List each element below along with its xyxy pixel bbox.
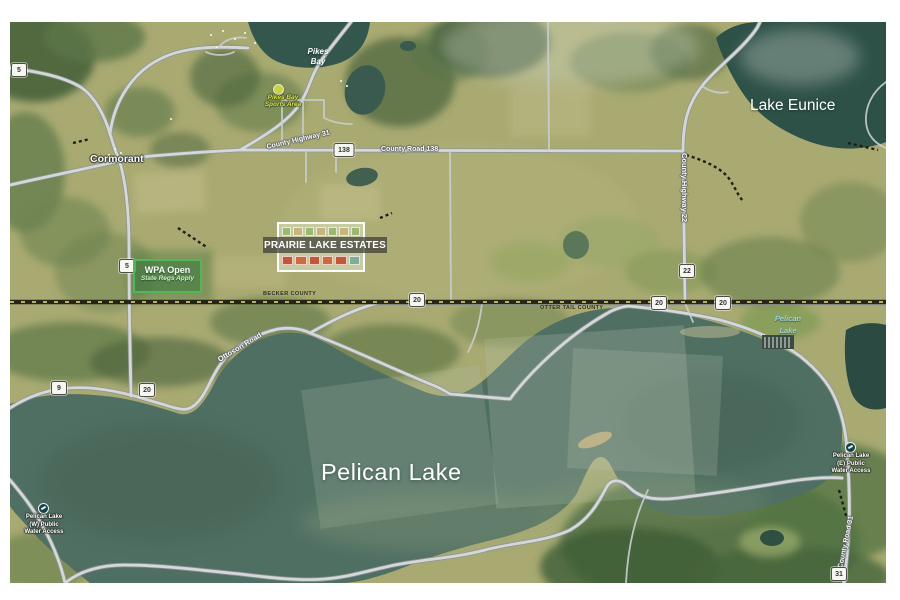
map-canvas[interactable]: Cormorant Pikes Bay Lake Eunice Pelican … [10, 22, 886, 583]
west-access-line1: Pelican Lake [13, 514, 75, 522]
west-access-label: Pelican Lake (W) Public Water Access [13, 514, 75, 537]
sports-area-line2: Sports Area [256, 101, 310, 108]
west-access-line2: (W) Public [13, 522, 75, 530]
estates-label-band: PRAIRIE LAKE ESTATES [263, 237, 387, 253]
sports-area-label: Pikes Bay Sports Area [256, 94, 310, 108]
highway-shield-9: 9 [51, 381, 67, 395]
east-access-line1: Pelican Lake [820, 453, 882, 461]
highway-shield-20-mid: 20 [651, 296, 667, 310]
boat-access-east-icon [845, 442, 856, 453]
estates-label: PRAIRIE LAKE ESTATES [264, 240, 386, 251]
highway-shield-31: 31 [831, 567, 847, 581]
highway-shield-20-west: 20 [409, 293, 425, 307]
marina-docks [762, 335, 794, 349]
highway-shield-20-shore: 20 [139, 383, 155, 397]
highway-shield-22: 22 [679, 264, 695, 278]
highway-shield-5-nw: 5 [11, 63, 27, 77]
wpa-subtitle: State Regs Apply [135, 275, 200, 282]
page-frame: Cormorant Pikes Bay Lake Eunice Pelican … [0, 0, 900, 600]
east-access-line2: (E) Public [820, 461, 882, 469]
wpa-title: WPA Open [135, 265, 200, 275]
satellite-imagery [10, 22, 886, 583]
east-access-line3: Water Access [820, 468, 882, 476]
west-access-line3: Water Access [13, 529, 75, 537]
east-access-label: Pelican Lake (E) Public Water Access [820, 453, 882, 476]
boat-access-west-icon [38, 503, 49, 514]
highway-shield-138: 138 [334, 143, 355, 157]
estates-plat-row-bottom [282, 256, 360, 265]
estates-plat-row-top [282, 227, 360, 236]
highway-shield-20-east: 20 [715, 296, 731, 310]
sports-area-line1: Pikes Bay [256, 94, 310, 101]
wpa-sign: WPA Open State Regs Apply [133, 259, 202, 293]
